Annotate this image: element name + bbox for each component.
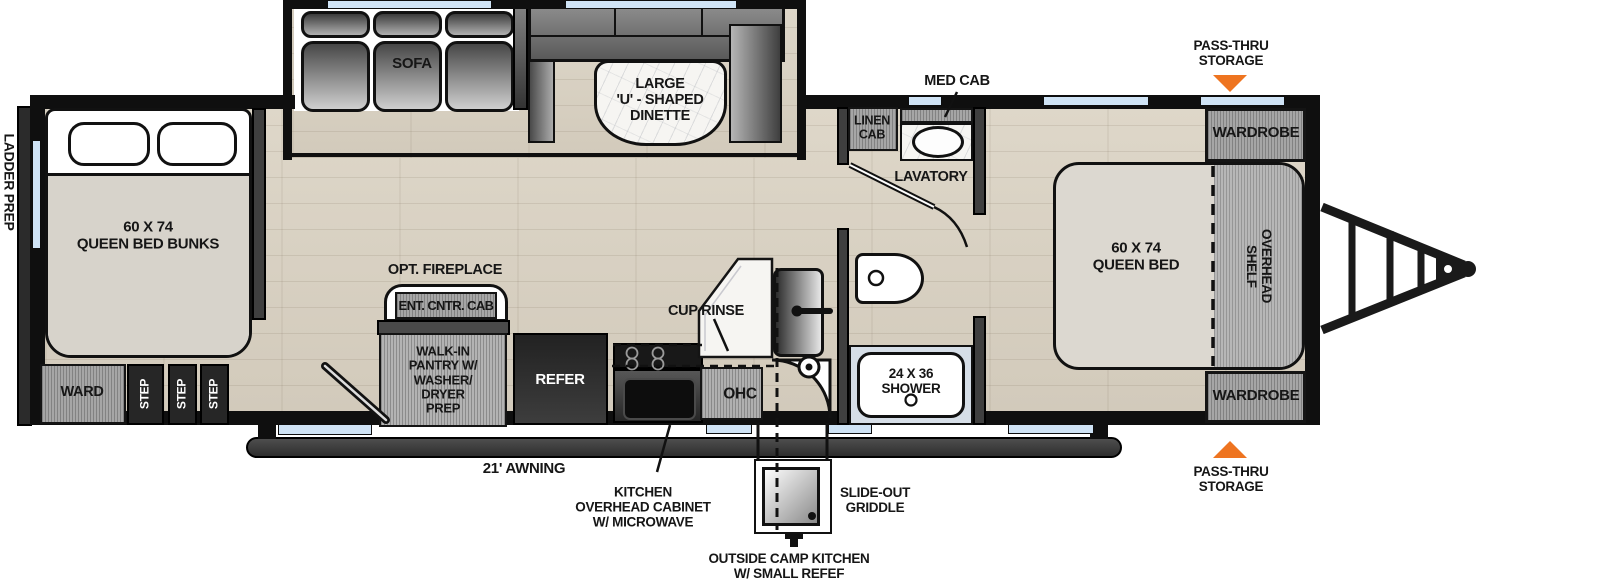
wall-top-left	[30, 95, 295, 109]
label-shower: 24 X 36 SHOWER	[861, 367, 961, 397]
oven-window	[623, 378, 696, 420]
bath-wall-lower-left	[837, 228, 849, 425]
rear-window	[32, 140, 41, 249]
label-ladder-prep: LADDER PREP	[1, 133, 16, 230]
awning-bar	[246, 437, 1122, 458]
range-cooktop	[613, 343, 703, 369]
label-queen-bed: 60 X 74 QUEEN BED	[1071, 241, 1201, 274]
label-lavatory: LAVATORY	[876, 170, 986, 186]
label-refer: REFER	[535, 372, 584, 389]
label-awning: 21' AWNING	[454, 461, 594, 478]
bunk-pillow-right	[157, 122, 237, 166]
bath-wall-lower-right	[973, 316, 986, 425]
label-slide-out-griddle: SLIDE-OUT GRIDDLE	[820, 486, 930, 516]
pass-thru-arrow-top-icon	[1213, 75, 1247, 92]
slideout-window-sofa	[327, 0, 492, 9]
label-kitchen-ohc: KITCHEN OVERHEAD CABINET W/ MICROWAVE	[548, 486, 738, 531]
label-ent-cntr-cab: ENT. CNTR. CAB	[391, 299, 501, 313]
bottom-window-entry	[828, 424, 872, 434]
label-sofa: SOFA	[392, 56, 432, 73]
label-cup-rinse: CUP RINSE	[651, 304, 761, 320]
bunk-pillow-left	[68, 122, 150, 166]
slideout-wall-frame	[283, 0, 806, 160]
bottom-window-bedroom	[1008, 424, 1094, 434]
label-dinette: LARGE 'U' - SHAPED DINETTE	[595, 77, 725, 125]
label-step-3: STEP	[207, 379, 220, 409]
bunk-mattress	[48, 173, 249, 358]
rv-floorplan: LADDER PREP 60 X 74 QUEEN BED BUNKS WARD…	[0, 0, 1600, 584]
hitch-a-frame	[1322, 207, 1476, 330]
bottom-window-rear-door	[278, 424, 372, 435]
label-overhead-shelf: OVERHEAD SHELF	[1243, 191, 1273, 341]
label-bunk-beds: 60 X 74 QUEEN BED BUNKS	[58, 220, 238, 253]
label-linen-cab: LINEN CAB	[854, 114, 890, 142]
pass-thru-arrow-bottom-icon	[1213, 441, 1247, 458]
medicine-cabinet	[900, 108, 973, 123]
wall-right-front	[1305, 95, 1320, 425]
label-pass-thru-top: PASS-THRU STORAGE	[1171, 39, 1291, 69]
label-step-1: STEP	[138, 379, 151, 409]
label-wardrobe-bottom: WARDROBE	[1213, 388, 1300, 405]
label-wardrobe-top: WARDROBE	[1213, 125, 1300, 142]
slideout-window-dinette	[565, 0, 737, 9]
label-pantry: WALK-IN PANTRY W/ WASHER/ DRYER PREP	[383, 344, 503, 415]
bottom-window-kitchen	[706, 424, 752, 434]
griddle-surface	[762, 467, 820, 526]
label-pass-thru-bottom: PASS-THRU STORAGE	[1171, 465, 1291, 495]
bath-wall-upper-right	[973, 107, 986, 215]
entry-door	[773, 268, 824, 357]
top-window-bedroom-1	[1043, 96, 1149, 106]
awning-mount-left	[258, 424, 276, 439]
top-window-bath	[908, 96, 942, 106]
label-camp-kitchen: OUTSIDE CAMP KITCHEN W/ SMALL REFEF	[674, 552, 904, 582]
label-ohc: OHC	[723, 385, 757, 402]
label-ward: WARD	[60, 385, 103, 401]
label-opt-fireplace: OPT. FIREPLACE	[365, 263, 525, 279]
lavatory-sink	[912, 126, 964, 158]
toilet	[855, 253, 924, 304]
range-oven	[613, 369, 703, 423]
label-step-2: STEP	[175, 379, 188, 409]
top-window-bedroom-2	[1200, 96, 1285, 106]
bunkroom-wall	[252, 108, 266, 320]
label-med-cab: MED CAB	[907, 74, 1007, 90]
